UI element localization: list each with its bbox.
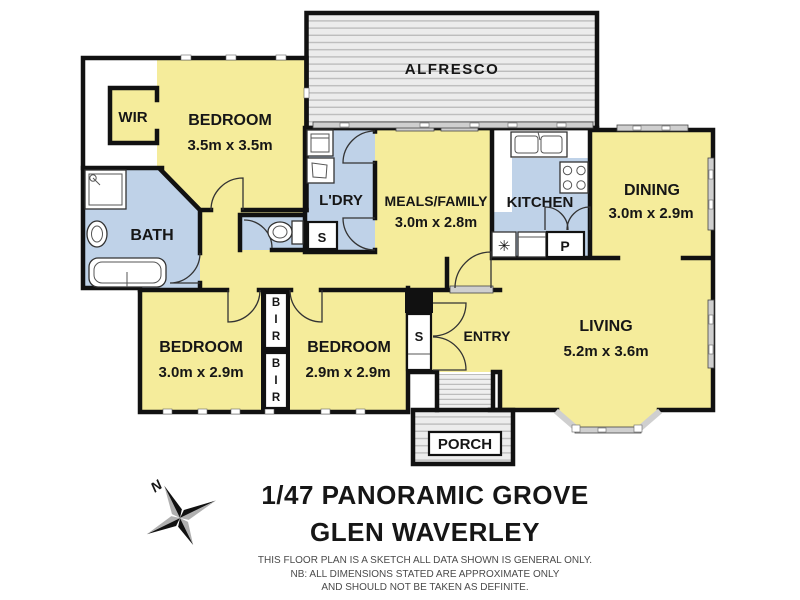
meals-dims: 3.0m x 2.8m [395, 215, 477, 231]
wir-label: WIR [118, 109, 147, 126]
basin [87, 221, 107, 247]
window-tick [420, 123, 429, 127]
washing-machine [307, 130, 333, 156]
pantry-label: P [560, 238, 569, 254]
window-tick [321, 409, 330, 414]
disclaimer-line3: AND SHOULD NOT BE TAKEN AS DEFINITE. [321, 582, 528, 593]
window-tick [470, 123, 479, 127]
dining-top-window [617, 125, 688, 131]
window-tick [198, 409, 207, 414]
window-tick [356, 409, 365, 414]
window-tick [662, 126, 670, 130]
bir-letter: B [272, 358, 280, 370]
living-dims: 5.2m x 3.6m [563, 343, 648, 360]
store-one-label: S [318, 230, 327, 245]
window-tick [163, 409, 172, 414]
bedroom-main-dims: 3.5m x 3.5m [187, 137, 272, 154]
porch-label: PORCH [438, 436, 492, 453]
window-tick [557, 123, 566, 127]
bir-letter: B [272, 297, 280, 309]
disclaimer-line2: NB: ALL DIMENSIONS STATED ARE APPROXIMAT… [291, 569, 560, 580]
shower [85, 170, 126, 209]
compass-rose: N [131, 468, 229, 561]
window-tick [634, 425, 642, 432]
bedroom-main-label: BEDROOM [188, 112, 272, 129]
window-tick [226, 55, 236, 60]
bedroom-two-dims: 2.9m x 2.9m [305, 364, 390, 381]
window-tick [709, 315, 713, 324]
floor-plan-canvas: ALFRESCO WIR BEDROOM 3.5m x 3.5m BATH L'… [0, 0, 800, 600]
laundry-label: L'DRY [319, 192, 363, 209]
floor-plan-page: ALFRESCO WIR BEDROOM 3.5m x 3.5m BATH L'… [0, 0, 800, 600]
disclaimer-line1: THIS FLOOR PLAN IS A SKETCH ALL DATA SHO… [258, 555, 592, 566]
floor-fills [83, 13, 713, 464]
bedroom-three-dims: 3.0m x 2.9m [158, 364, 243, 381]
kitchen-sink [511, 132, 567, 157]
living-right-window [708, 300, 714, 368]
compass-north-label: N [147, 476, 165, 495]
entry-label: ENTRY [464, 328, 512, 344]
bir-letter: R [272, 331, 281, 343]
bir-letter: I [274, 314, 277, 326]
stove-cooktop [560, 162, 588, 193]
alfresco-label: ALFRESCO [405, 61, 500, 78]
bay-window-center [575, 427, 641, 433]
window-tick [340, 123, 349, 127]
window-tick [276, 55, 286, 60]
window-tick [633, 126, 641, 130]
bir-letter: R [272, 392, 281, 404]
alfresco-slider [313, 122, 593, 128]
window-tick [265, 409, 274, 414]
meals-label: MEALS/FAMILY [385, 193, 489, 209]
dining-dims: 3.0m x 2.9m [608, 205, 693, 222]
entry-wall-mass [405, 292, 433, 313]
porch-steps [437, 374, 493, 410]
window-tick [709, 345, 713, 354]
toilet [268, 221, 303, 244]
window-tick [709, 200, 713, 209]
dining-label: DINING [624, 182, 680, 199]
bathtub [89, 258, 166, 287]
living-label: LIVING [579, 318, 632, 335]
address-title-line2: GLEN WAVERLEY [310, 517, 540, 547]
compass-star-icon [131, 468, 229, 561]
window-tick [572, 425, 580, 432]
meals-entry-door-band [450, 286, 493, 293]
bath-label: BATH [130, 227, 173, 244]
window-tick [598, 428, 606, 432]
store-two-label: S [415, 329, 424, 344]
address-title-line1: 1/47 PANORAMIC GROVE [261, 480, 588, 510]
dishwasher-symbol: ✳ [498, 238, 511, 255]
window-tick [181, 55, 191, 60]
kitchen-label: KITCHEN [507, 194, 574, 211]
kitchen-appliance [518, 232, 546, 257]
window-tick [709, 170, 713, 179]
dining-right-window [708, 158, 714, 230]
bir-letter: I [274, 375, 277, 387]
window-tick [508, 123, 517, 127]
caption-block: 1/47 PANORAMIC GROVE GLEN WAVERLEY THIS … [258, 480, 592, 593]
bedroom-two-label: BEDROOM [307, 339, 391, 356]
laundry-trough [307, 158, 334, 183]
window-tick [231, 409, 240, 414]
window-tick [304, 88, 309, 98]
bedroom-three-label: BEDROOM [159, 339, 243, 356]
